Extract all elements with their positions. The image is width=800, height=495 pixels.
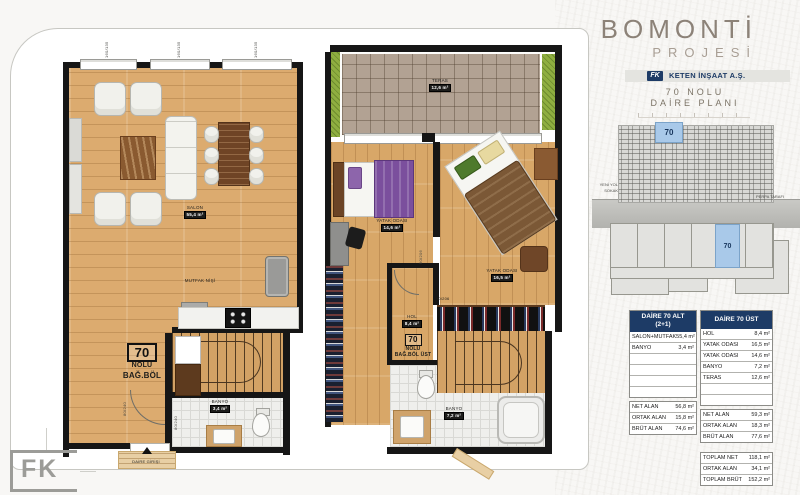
window: [150, 59, 210, 70]
wardrobe: [437, 305, 545, 333]
row-value: 152,2 m²: [748, 475, 770, 485]
upper-floor-plan: TERAS 12,6 m² YATAK ODASI 14,6 m²: [322, 40, 572, 472]
dining-chair: [249, 168, 264, 185]
table-body: HOL8,4 m²YATAK ODASI16,5 m²YATAK ODASI14…: [701, 329, 772, 405]
door-dim-tag: 80/240: [173, 406, 178, 430]
sink: [400, 416, 424, 438]
room-area: 7,2 m²: [444, 412, 464, 421]
door-leaf: [175, 336, 201, 364]
table-row: [630, 353, 696, 364]
company-logo-icon: FK: [647, 71, 663, 81]
table-body: TOPLAM NET118,1 m²ORTAK ALAN34,1 m²TOPLA…: [701, 453, 772, 485]
table-row: BRÜT ALAN77,6 m²: [701, 431, 772, 442]
plan-number-line2: DAİRE PLANI: [615, 98, 775, 108]
table-row: SALON+MUTFAK55,4 m²: [630, 332, 696, 342]
wall: [555, 45, 562, 332]
entrance-label: DAİRE GİRİŞİ: [118, 459, 174, 464]
table-group: NET ALAN59,3 m²ORTAK ALAN18,3 m²BRÜT ALA…: [700, 409, 773, 443]
footer-logo: FK: [21, 454, 58, 484]
row-value: 59,3 m²: [751, 410, 770, 420]
row-value: 12,6 m²: [751, 373, 770, 383]
row-label: BANYO: [632, 343, 651, 353]
room-area: 8,4 m²: [402, 320, 422, 329]
table-header: DAİRE 70 ÜST: [701, 311, 772, 329]
table-header-line: (2+1): [631, 321, 695, 329]
room-name: BANYO: [446, 406, 463, 411]
dining-chair: [249, 147, 264, 164]
table-row: BANYO3,4 m²: [630, 342, 696, 353]
stair-direction-arc: [455, 341, 522, 385]
site-plan: 70: [596, 222, 796, 300]
row-label: YATAK ODASI: [703, 340, 738, 350]
row-label: BANYO: [703, 362, 722, 372]
table-row: TOPLAM NET118,1 m²: [701, 453, 772, 463]
row-value: 55,4 m²: [676, 332, 695, 342]
fridge: [265, 256, 289, 297]
toilet: [252, 413, 270, 437]
pillow: [348, 167, 362, 189]
row-label: ORTAK ALAN: [703, 464, 737, 474]
dining-chair: [204, 147, 219, 164]
room-area: 55,4 m²: [184, 211, 207, 220]
wall: [297, 62, 303, 333]
highlighted-unit: 70: [655, 122, 683, 143]
bathtub: [497, 396, 545, 444]
terrace-floor: [340, 52, 542, 137]
lower-floor-plan: 160/135 160/135 160/135 SALON 55,4 m² MU…: [60, 40, 310, 472]
unit-number: 70: [405, 334, 422, 346]
table-group: NET ALAN56,8 m²ORTAK ALAN15,8 m²BRÜT ALA…: [629, 401, 697, 435]
dining-chair: [204, 168, 219, 185]
table-header-line: DAİRE 70 ÜST: [702, 316, 771, 324]
building-facade: [618, 125, 774, 203]
bathtub-basin: [503, 402, 539, 438]
window-dim-tag: 160/135: [104, 40, 109, 58]
table-body: NET ALAN59,3 m²ORTAK ALAN18,3 m²BRÜT ALA…: [701, 410, 772, 442]
decorative-line: [80, 471, 96, 472]
row-label: TOPLAM NET: [703, 453, 738, 463]
door-dim-tag: 90/206: [436, 296, 456, 301]
street-label-left: YENİ YOL SOKAK: [588, 182, 618, 193]
row-label: BRÜT ALAN: [632, 424, 662, 434]
door-dim-tag: 80/240: [122, 392, 127, 416]
table-row: [701, 383, 772, 394]
table-group: TOPLAM NET118,1 m²ORTAK ALAN34,1 m²TOPLA…: [700, 452, 773, 486]
project-title: BOMONTİ: [565, 14, 757, 45]
row-label: TOPLAM BRÜT: [703, 475, 742, 485]
pillow: [477, 139, 505, 165]
brochure-page: 160/135 160/135 160/135 SALON 55,4 m² MU…: [0, 0, 800, 495]
vanity: [393, 410, 431, 444]
row-value: 118,1 m²: [749, 453, 770, 463]
company-name: KETEN İNŞAAT A.Ş.: [669, 70, 745, 82]
row-value: 7,2 m²: [754, 362, 770, 372]
pillow: [454, 155, 482, 181]
room-name: TERAS: [432, 78, 448, 83]
project-subtitle: PROJESİ: [565, 45, 757, 60]
dining-chair: [204, 126, 219, 143]
room-area: 3,4 m²: [210, 405, 230, 414]
row-label: ORTAK ALAN: [703, 421, 737, 431]
bathroom-label: BANYO 3,4 m²: [195, 399, 245, 413]
room-area: 14,6 m²: [381, 224, 404, 233]
row-value: 3,4 m²: [678, 343, 694, 353]
table-row: TERAS12,6 m²: [701, 372, 772, 383]
table-daire-70-ust: DAİRE 70 ÜST HOL8,4 m²YATAK ODASI16,5 m²…: [700, 310, 773, 489]
room-area: 16,5 m²: [491, 274, 514, 283]
dining-table: [218, 122, 250, 186]
row-value: 77,6 m²: [751, 432, 770, 442]
highlighted-unit: 70: [715, 224, 740, 268]
wall: [165, 333, 172, 447]
row-label: YATAK ODASI: [703, 351, 738, 361]
table-row: BRÜT ALAN74,6 m²: [630, 423, 696, 434]
room-name: YATAK ODASI: [376, 218, 407, 223]
table-row: [630, 386, 696, 397]
vanity: [206, 425, 242, 447]
wall: [387, 263, 433, 268]
unit-word: BAĞ.BÖL ÜST: [395, 352, 432, 358]
dining-chair: [249, 126, 264, 143]
unit-number: 70: [127, 343, 157, 362]
hall-label: HOL 8,4 m²: [390, 314, 434, 328]
kitchen-label: MUTFAK NİŞİ: [170, 278, 230, 284]
street-label-right: PERPA TARAFI: [756, 194, 800, 199]
wall: [433, 142, 440, 237]
room-name: HOL: [407, 314, 417, 319]
decorative-line: [46, 428, 47, 450]
armchair: [130, 82, 162, 116]
row-label: HOL: [703, 329, 714, 339]
row-label: ORTAK ALAN: [632, 413, 666, 423]
table-row: BANYO7,2 m²: [701, 361, 772, 372]
footer-logo-frame: FK: [10, 450, 77, 492]
armchair: [94, 82, 126, 116]
armchair: [94, 192, 126, 226]
salon-label: SALON 55,4 m²: [170, 205, 220, 219]
window-mullion: [422, 133, 435, 142]
wall: [63, 443, 130, 449]
street-label-line: SOKAK: [604, 188, 618, 193]
unit-label: 70 NOLU BAĞ.BÖL ÜST: [392, 334, 434, 359]
room-name: YATAK ODASI: [486, 268, 517, 273]
bedroom2-label: YATAK ODASI 16,5 m²: [472, 268, 532, 282]
table-row: YATAK ODASI16,5 m²: [701, 339, 772, 350]
table-row: [630, 364, 696, 375]
table-row: NET ALAN56,8 m²: [630, 402, 696, 412]
plan-number-line1: 70 NOLU: [615, 87, 775, 97]
wall: [165, 447, 290, 453]
street-label-line: YENİ YOL: [600, 182, 618, 187]
dresser: [534, 148, 558, 180]
row-label: SALON+MUTFAK: [632, 332, 676, 342]
row-value: 74,6 m²: [675, 424, 694, 434]
company-strip: FK KETEN İNŞAAT A.Ş.: [625, 70, 790, 82]
table-body: SALON+MUTFAK55,4 m²BANYO3,4 m²: [630, 332, 696, 397]
table-header: DAİRE 70 ALT (2+1): [630, 311, 696, 332]
bedroom1-label: YATAK ODASI 14,6 m²: [362, 218, 422, 232]
building-elevation: 70 YENİ YOL SOKAK PERPA TARAFI: [598, 120, 792, 236]
sofa: [165, 116, 197, 200]
table-row: NET ALAN59,3 m²: [701, 410, 772, 420]
row-value: 15,8 m²: [675, 413, 694, 423]
table-row: ORTAK ALAN18,3 m²: [701, 420, 772, 431]
row-value: 18,3 m²: [751, 421, 770, 431]
table-daire-70-alt: DAİRE 70 ALT (2+1) SALON+MUTFAK55,4 m²BA…: [629, 310, 697, 438]
row-value: 34,1 m²: [751, 464, 770, 474]
table-group: DAİRE 70 ALT (2+1) SALON+MUTFAK55,4 m²BA…: [629, 310, 697, 398]
table-row: HOL8,4 m²: [701, 329, 772, 339]
cabinet: [69, 164, 82, 214]
stove: [225, 308, 251, 328]
unit-label: 70 NOLU BAĞ.BÖL: [118, 343, 166, 381]
row-value: 14,6 m²: [751, 351, 770, 361]
terrace-label: TERAS 12,6 m²: [410, 78, 470, 92]
row-label: NET ALAN: [632, 402, 659, 412]
row-label: NET ALAN: [703, 410, 730, 420]
table-body: NET ALAN56,8 m²ORTAK ALAN15,8 m²BRÜT ALA…: [630, 402, 696, 434]
window: [80, 59, 137, 70]
entrance-arrow-icon: [142, 447, 152, 454]
room-area: 12,6 m²: [429, 84, 452, 93]
armchair: [130, 192, 162, 226]
row-value: 16,5 m²: [751, 340, 770, 350]
coffee-table: [120, 136, 156, 180]
sink: [213, 429, 235, 444]
table-row: [701, 394, 772, 405]
row-label: TERAS: [703, 373, 721, 383]
wall: [387, 447, 547, 454]
row-value: 8,4 m²: [754, 329, 770, 339]
ruler-marks: [638, 113, 750, 118]
toilet: [417, 375, 435, 399]
wardrobe: [326, 266, 343, 422]
table-row: YATAK ODASI14,6 m²: [701, 350, 772, 361]
wardrobe: [175, 364, 201, 396]
table-row: ORTAK ALAN34,1 m²: [701, 463, 772, 474]
table-row: [630, 375, 696, 386]
table-row: ORTAK ALAN15,8 m²: [630, 412, 696, 423]
wall: [283, 333, 290, 455]
row-value: 56,8 m²: [675, 402, 694, 412]
staircase: [437, 331, 547, 393]
unit-word: NOLU: [132, 362, 153, 369]
duvet: [374, 160, 414, 218]
unit-word: BAĞ.BÖL: [123, 371, 161, 380]
bathroom-label: BANYO 7,2 m²: [432, 406, 476, 420]
table-group: DAİRE 70 ÜST HOL8,4 m²YATAK ODASI16,5 m²…: [700, 310, 773, 406]
table-row: TOPLAM BRÜT152,2 m²: [701, 474, 772, 485]
wall: [545, 331, 552, 454]
room-name: BANYO: [212, 399, 229, 404]
table-header-line: DAİRE 70 ALT: [631, 313, 695, 321]
row-label: BRÜT ALAN: [703, 432, 733, 442]
room-name: SALON: [187, 205, 203, 210]
wall: [330, 45, 562, 52]
window: [222, 59, 292, 70]
window-dim-tag: 160/135: [176, 40, 181, 58]
window-dim-tag: 160/135: [253, 40, 258, 58]
site-units-row: [610, 223, 774, 268]
cabinet: [69, 118, 82, 162]
door-dim-tag: 90/206: [418, 240, 423, 264]
stair-direction-arc: [192, 341, 261, 383]
